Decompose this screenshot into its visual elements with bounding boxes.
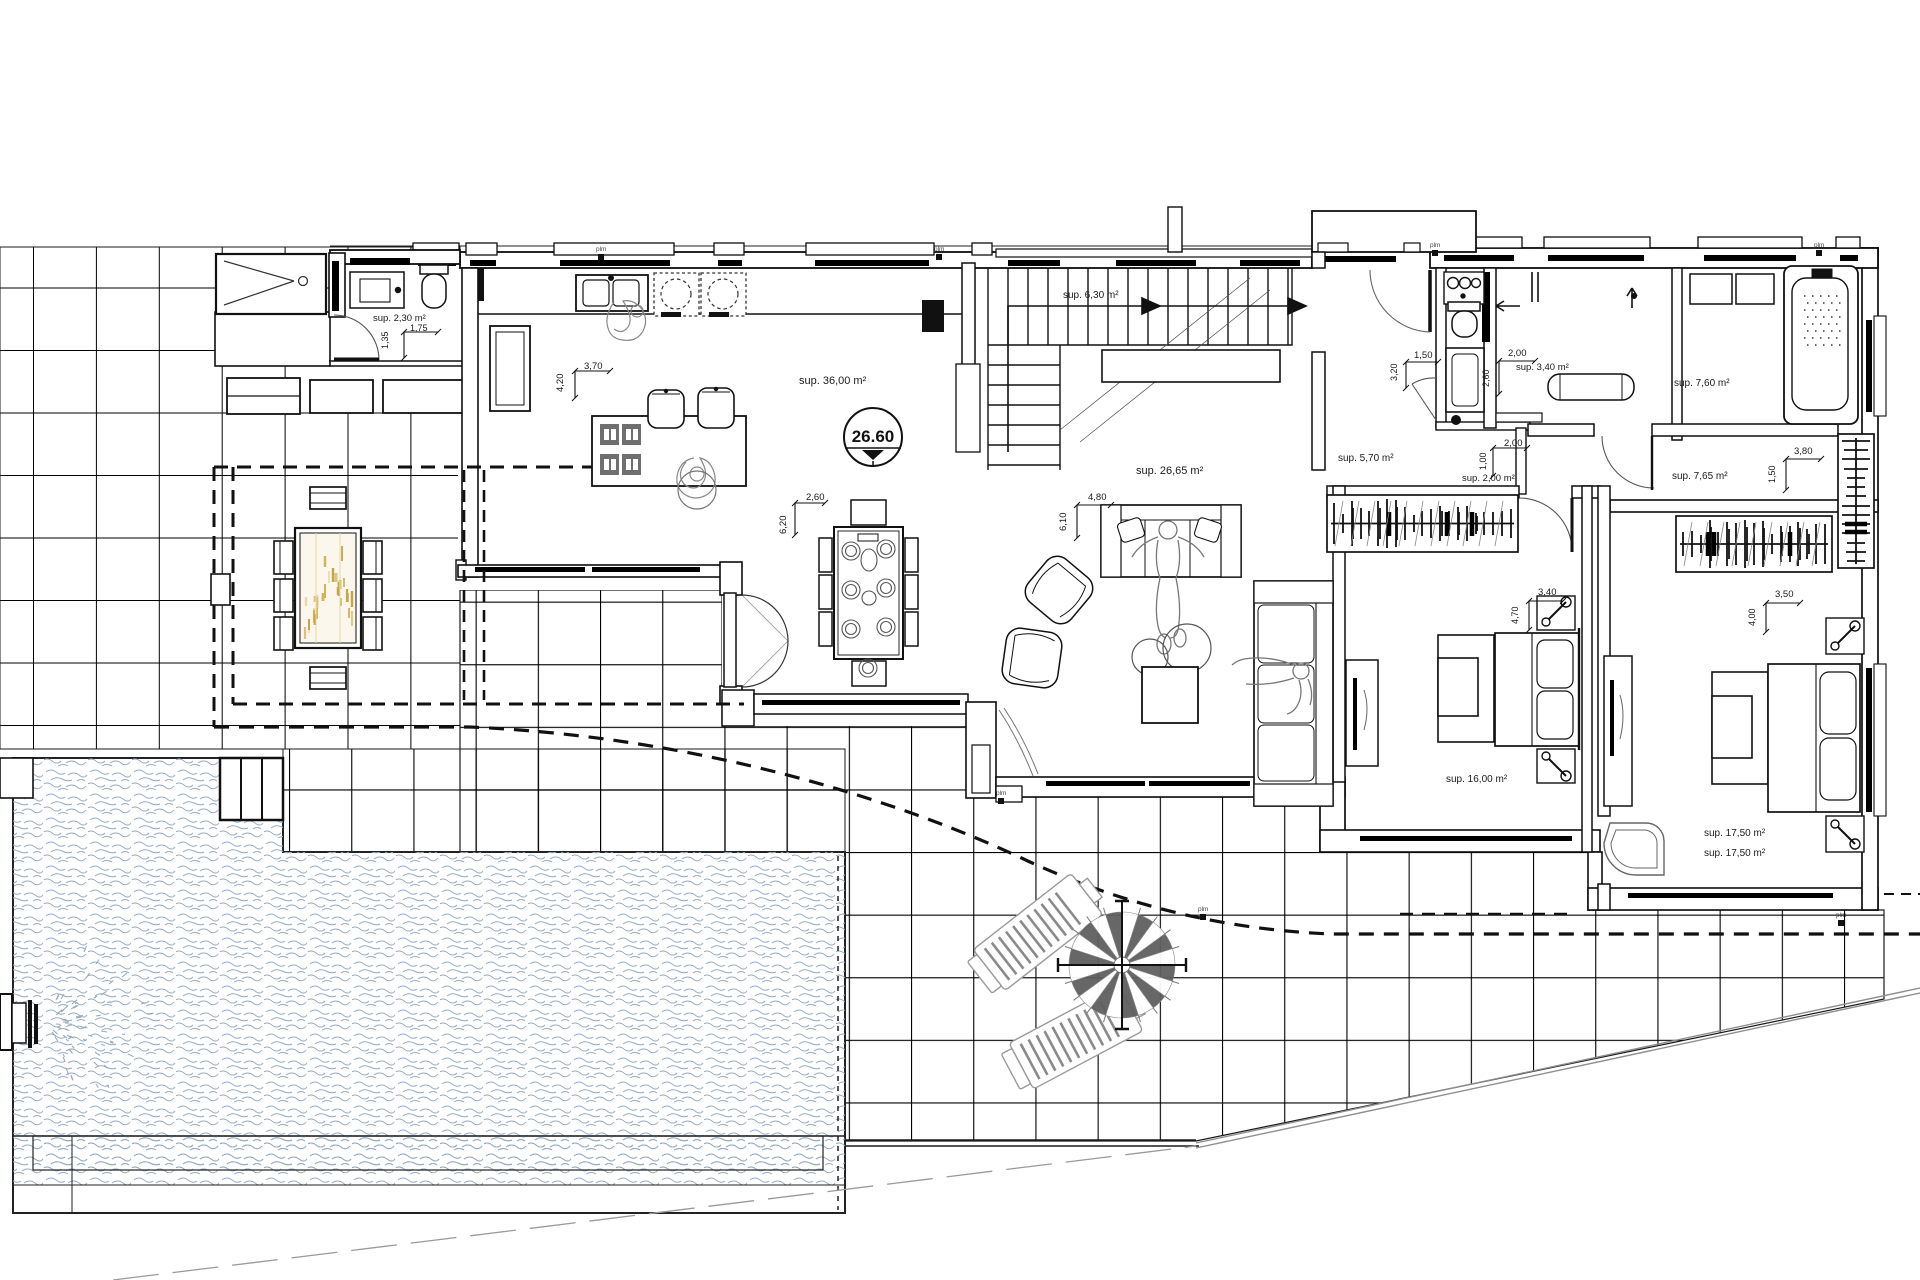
svg-text:3,20: 3,20 — [1389, 363, 1399, 381]
svg-text:1,50: 1,50 — [1414, 350, 1433, 361]
svg-text:sup. 16,00 m²: sup. 16,00 m² — [1446, 774, 1508, 785]
svg-text:2,60: 2,60 — [1481, 369, 1491, 387]
svg-text:sup. 5,70 m²: sup. 5,70 m² — [1338, 453, 1394, 464]
svg-text:4,20: 4,20 — [555, 374, 566, 393]
svg-text:1,50: 1,50 — [1767, 465, 1777, 483]
svg-text:sup. 17,50 m²: sup. 17,50 m² — [1704, 828, 1766, 839]
svg-text:2,60: 2,60 — [806, 492, 825, 503]
svg-text:plm: plm — [934, 246, 944, 253]
svg-text:plm: plm — [1814, 242, 1824, 249]
svg-text:4,00: 4,00 — [1747, 608, 1757, 626]
svg-text:sup. 7,60 m²: sup. 7,60 m² — [1674, 378, 1730, 389]
svg-text:3,40: 3,40 — [1538, 587, 1557, 598]
svg-text:6,20: 6,20 — [778, 516, 789, 535]
svg-text:3,80: 3,80 — [1794, 446, 1813, 457]
svg-text:sup. 26,65 m²: sup. 26,65 m² — [1136, 465, 1204, 477]
svg-text:sup. 6,30 m²: sup. 6,30 m² — [1063, 290, 1119, 301]
svg-text:3,50: 3,50 — [1775, 589, 1794, 600]
svg-text:1,35: 1,35 — [380, 331, 390, 349]
svg-text:2,00: 2,00 — [1504, 438, 1523, 449]
svg-text:plm: plm — [1430, 242, 1440, 249]
svg-text:sup. 17,50 m²: sup. 17,50 m² — [1704, 848, 1766, 859]
svg-text:plm: plm — [996, 790, 1006, 797]
svg-text:sup. 2,00 m²: sup. 2,00 m² — [1462, 473, 1515, 484]
svg-text:plm: plm — [596, 246, 606, 253]
svg-text:1,00: 1,00 — [1478, 452, 1488, 470]
svg-text:4,80: 4,80 — [1088, 492, 1107, 503]
svg-text:plm: plm — [1836, 912, 1846, 919]
svg-text:plm: plm — [1198, 906, 1208, 913]
svg-text:26.60: 26.60 — [852, 427, 895, 446]
svg-text:6,10: 6,10 — [1058, 513, 1069, 532]
svg-text:sup. 7,65 m²: sup. 7,65 m² — [1672, 471, 1728, 482]
svg-text:sup. 3,40 m²: sup. 3,40 m² — [1516, 362, 1569, 373]
svg-text:2,00: 2,00 — [1508, 348, 1527, 359]
svg-text:sup. 36,00 m²: sup. 36,00 m² — [799, 375, 867, 387]
svg-text:3,70: 3,70 — [584, 361, 603, 372]
svg-text:4,70: 4,70 — [1510, 606, 1520, 624]
